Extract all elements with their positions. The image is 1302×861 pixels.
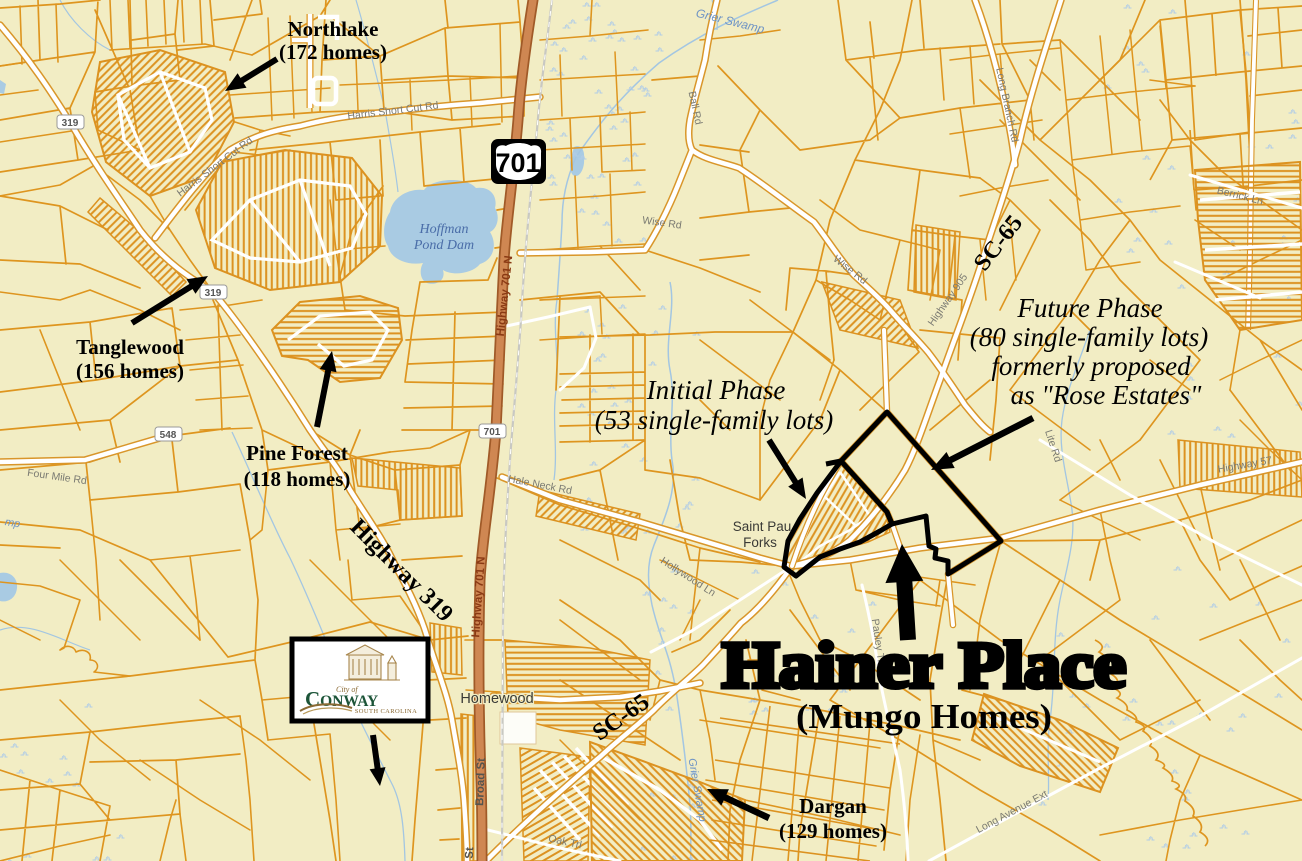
svg-text:Dargan: Dargan — [799, 794, 867, 818]
svg-text:Hoffman: Hoffman — [419, 222, 469, 237]
svg-text:701: 701 — [484, 427, 501, 438]
svg-text:Forks: Forks — [743, 535, 777, 550]
svg-text:(129 homes): (129 homes) — [779, 819, 887, 843]
svg-text:319: 319 — [62, 118, 79, 129]
svg-text:548: 548 — [160, 430, 177, 441]
svg-text:(172 homes): (172 homes) — [279, 40, 387, 64]
svg-text:Broad St: Broad St — [474, 758, 488, 806]
svg-text:Tanglewood: Tanglewood — [76, 335, 184, 359]
svg-text:(53 single-family lots): (53 single-family lots) — [595, 405, 833, 435]
svg-text:formerly proposed: formerly proposed — [991, 351, 1191, 381]
svg-text:Initial Phase: Initial Phase — [646, 375, 786, 405]
svg-text:(80 single-family lots): (80 single-family lots) — [970, 322, 1208, 352]
svg-text:Pond Dam: Pond Dam — [413, 238, 474, 253]
svg-text:St: St — [464, 847, 476, 859]
svg-text:319: 319 — [205, 288, 222, 299]
svg-text:Hainer Place: Hainer Place — [722, 629, 1126, 702]
svg-text:SOUTH CAROLINA: SOUTH CAROLINA — [355, 708, 417, 715]
svg-text:Pine Forest: Pine Forest — [246, 441, 348, 465]
svg-text:(156 homes): (156 homes) — [76, 359, 184, 383]
svg-text:701: 701 — [495, 148, 540, 178]
svg-text:(Mungo Homes): (Mungo Homes) — [796, 697, 1052, 736]
svg-text:as "Rose Estates": as "Rose Estates" — [1011, 380, 1202, 410]
svg-text:Homewood: Homewood — [460, 691, 533, 707]
svg-text:Saint Pau: Saint Pau — [733, 519, 792, 534]
svg-text:Future Phase: Future Phase — [1016, 293, 1162, 323]
svg-text:Northlake: Northlake — [288, 17, 379, 41]
svg-text:(118 homes): (118 homes) — [244, 467, 351, 491]
